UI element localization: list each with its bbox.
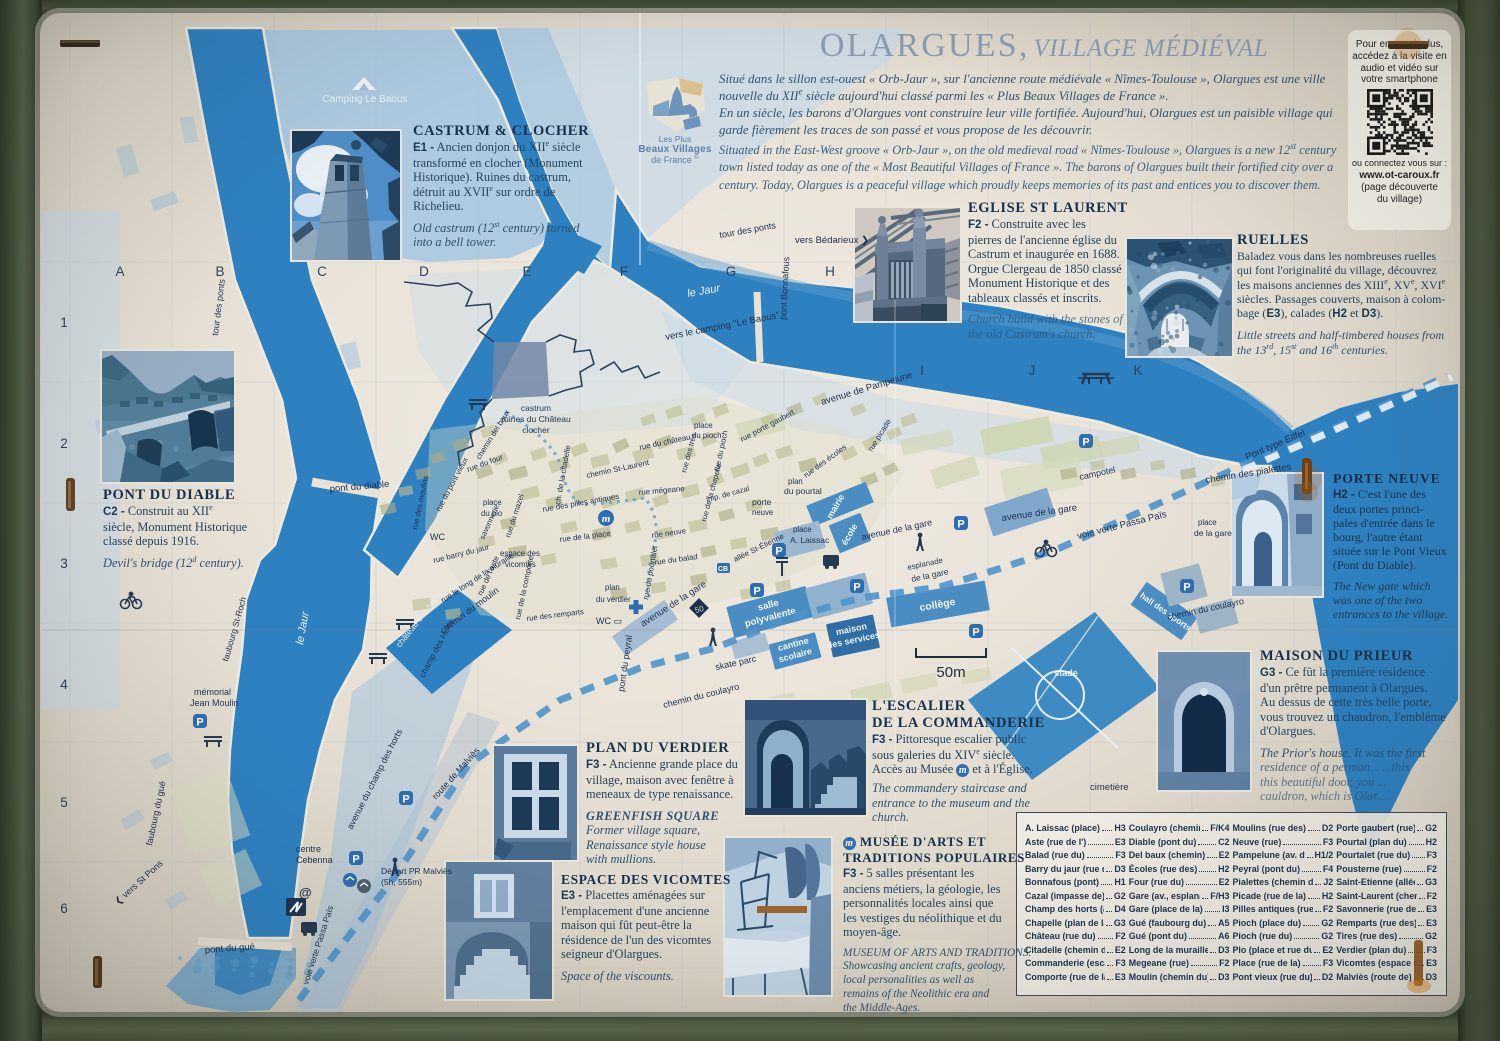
svg-text:D: D (419, 264, 429, 279)
svg-text:Départ PR Malviès: Départ PR Malviès (381, 866, 452, 876)
svg-text:vers Bédarieux ❯: vers Bédarieux ❯ (795, 235, 869, 246)
svg-text:P: P (753, 586, 760, 598)
svg-text:P: P (352, 854, 359, 866)
svg-text:P: P (853, 582, 860, 594)
svg-text:P: P (1082, 437, 1089, 449)
svg-text:I: I (920, 363, 924, 378)
svg-text:Jean Moulin: Jean Moulin (190, 698, 239, 708)
svg-text:(5h, 555m): (5h, 555m) (381, 877, 422, 887)
svg-text:place: place (793, 525, 812, 534)
svg-text:du verdier: du verdier (596, 595, 631, 604)
svg-text:G: G (726, 264, 737, 279)
svg-text:5: 5 (60, 795, 68, 810)
svg-text:porte: porte (752, 497, 772, 507)
svg-text:J: J (1029, 363, 1036, 378)
svg-text:B: B (215, 264, 224, 279)
svg-text:chemin du coulayro: chemin du coulayro (662, 681, 740, 710)
svg-text:E: E (522, 264, 531, 279)
svg-text:CB: CB (718, 566, 728, 573)
svg-text:place: place (1198, 518, 1217, 527)
svg-text:6: 6 (60, 901, 68, 916)
svg-text:m: m (602, 513, 611, 525)
svg-text:50m: 50m (936, 664, 965, 681)
svg-text:P: P (402, 794, 409, 806)
svg-text:❮ vers St Pons: ❮ vers St Pons (113, 858, 166, 907)
svg-text:plan: plan (605, 583, 620, 592)
svg-text:castrum: castrum (521, 403, 551, 413)
svg-text:P: P (196, 717, 203, 729)
svg-text:du pourtal: du pourtal (784, 486, 822, 496)
svg-text:P: P (775, 546, 782, 558)
svg-text:place: place (694, 421, 713, 430)
svg-text:A. Laissac: A. Laissac (790, 535, 830, 545)
svg-text:tour des ponts: tour des ponts (719, 220, 777, 240)
svg-text:@: @ (299, 885, 312, 900)
svg-text:K: K (1133, 363, 1142, 378)
svg-text:stade: stade (1054, 668, 1078, 678)
svg-text:faubourg du gué: faubourg du gué (144, 780, 167, 846)
svg-text:F: F (620, 264, 628, 279)
svg-text:2: 2 (60, 436, 68, 451)
svg-text:P: P (972, 627, 979, 639)
svg-text:4: 4 (60, 677, 68, 692)
svg-text:A: A (115, 264, 124, 279)
svg-text:1: 1 (60, 315, 68, 330)
svg-text:P: P (957, 519, 964, 531)
svg-text:3: 3 (60, 556, 68, 571)
svg-text:Cebenna: Cebenna (296, 855, 333, 865)
svg-text:C: C (317, 264, 327, 279)
svg-text:Camping Le Baous: Camping Le Baous (322, 94, 407, 105)
svg-text:clocher: clocher (522, 425, 550, 435)
svg-text:centre: centre (296, 844, 321, 854)
svg-text:P: P (1183, 582, 1190, 594)
svg-text:WC ▭: WC ▭ (596, 616, 622, 626)
svg-text:plan: plan (788, 477, 803, 486)
svg-text:cimetière: cimetière (1090, 782, 1129, 793)
svg-text:tour des ponts: tour des ponts (210, 278, 227, 336)
svg-text:ruines du Château: ruines du Château (501, 414, 571, 424)
svg-text:neuve: neuve (752, 508, 773, 517)
svg-text:H: H (825, 264, 835, 279)
svg-text:WC: WC (430, 532, 445, 542)
svg-text:de la gare: de la gare (1194, 528, 1232, 538)
svg-text:mémorial: mémorial (194, 687, 231, 697)
